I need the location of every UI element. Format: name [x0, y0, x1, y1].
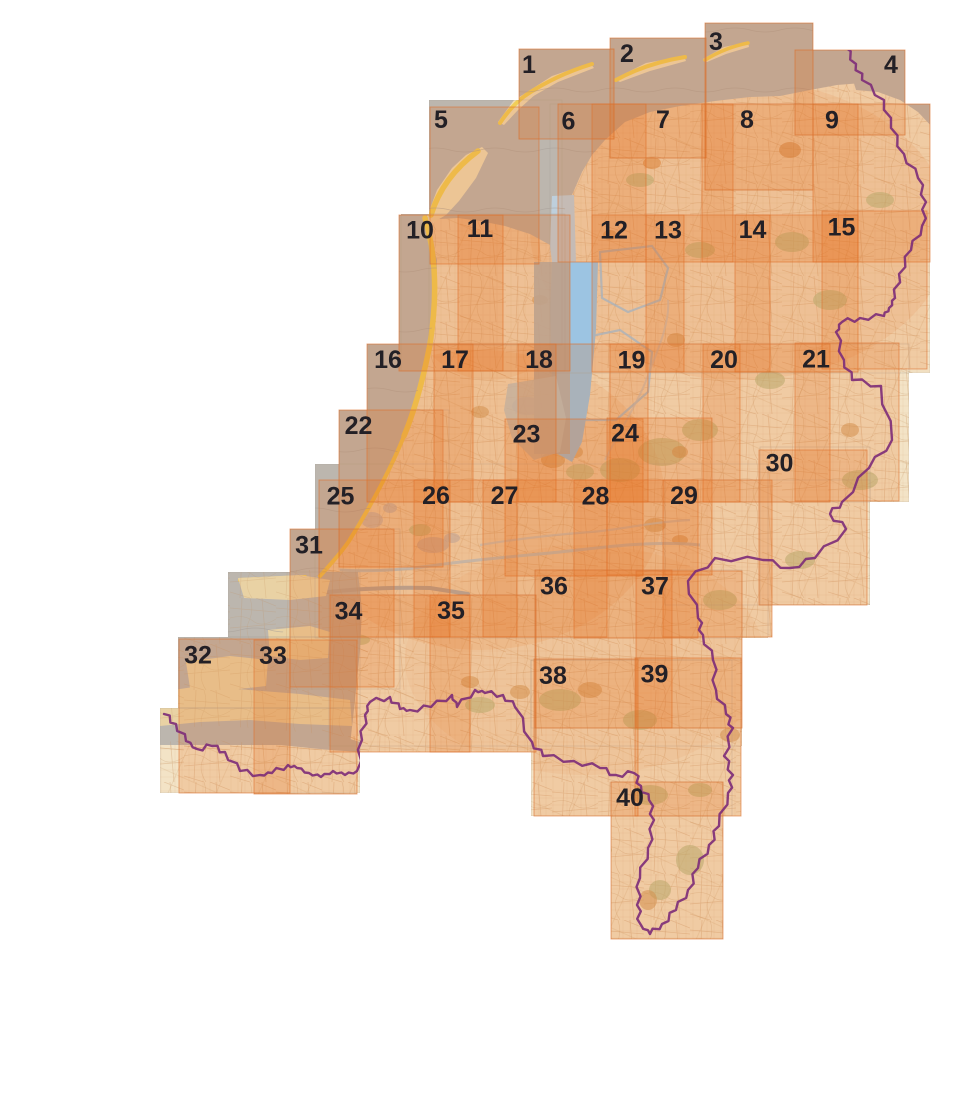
- svg-text:19: 19: [618, 347, 646, 375]
- svg-text:35: 35: [437, 597, 465, 625]
- svg-text:1: 1: [522, 51, 536, 79]
- svg-text:28: 28: [582, 483, 610, 511]
- svg-text:39: 39: [641, 661, 669, 689]
- svg-text:9: 9: [825, 107, 839, 135]
- svg-text:18: 18: [525, 346, 553, 374]
- svg-text:33: 33: [259, 642, 287, 670]
- svg-text:12: 12: [600, 217, 628, 245]
- svg-text:26: 26: [422, 482, 450, 510]
- svg-text:6: 6: [562, 108, 576, 136]
- svg-text:40: 40: [616, 784, 644, 812]
- svg-text:23: 23: [513, 420, 541, 448]
- svg-text:22: 22: [345, 412, 373, 440]
- svg-text:17: 17: [441, 346, 469, 374]
- svg-text:8: 8: [740, 106, 754, 134]
- svg-text:34: 34: [335, 598, 363, 626]
- svg-text:29: 29: [670, 482, 698, 510]
- svg-text:32: 32: [184, 642, 212, 670]
- svg-text:36: 36: [540, 573, 568, 601]
- svg-text:25: 25: [327, 483, 355, 511]
- svg-text:3: 3: [709, 28, 723, 56]
- svg-text:37: 37: [641, 573, 669, 601]
- svg-text:15: 15: [828, 214, 856, 242]
- svg-text:30: 30: [766, 450, 794, 478]
- svg-text:5: 5: [434, 106, 448, 134]
- svg-text:4: 4: [884, 51, 898, 79]
- svg-text:2: 2: [620, 40, 634, 68]
- svg-text:27: 27: [491, 482, 519, 510]
- svg-text:24: 24: [611, 419, 639, 447]
- svg-text:7: 7: [656, 106, 670, 134]
- svg-text:14: 14: [739, 216, 767, 244]
- svg-text:10: 10: [406, 217, 434, 245]
- svg-text:16: 16: [374, 346, 402, 374]
- svg-text:11: 11: [467, 215, 494, 243]
- svg-text:31: 31: [295, 532, 323, 560]
- svg-text:13: 13: [654, 217, 682, 245]
- svg-text:38: 38: [539, 662, 567, 690]
- svg-text:21: 21: [802, 346, 830, 374]
- svg-text:20: 20: [710, 346, 738, 374]
